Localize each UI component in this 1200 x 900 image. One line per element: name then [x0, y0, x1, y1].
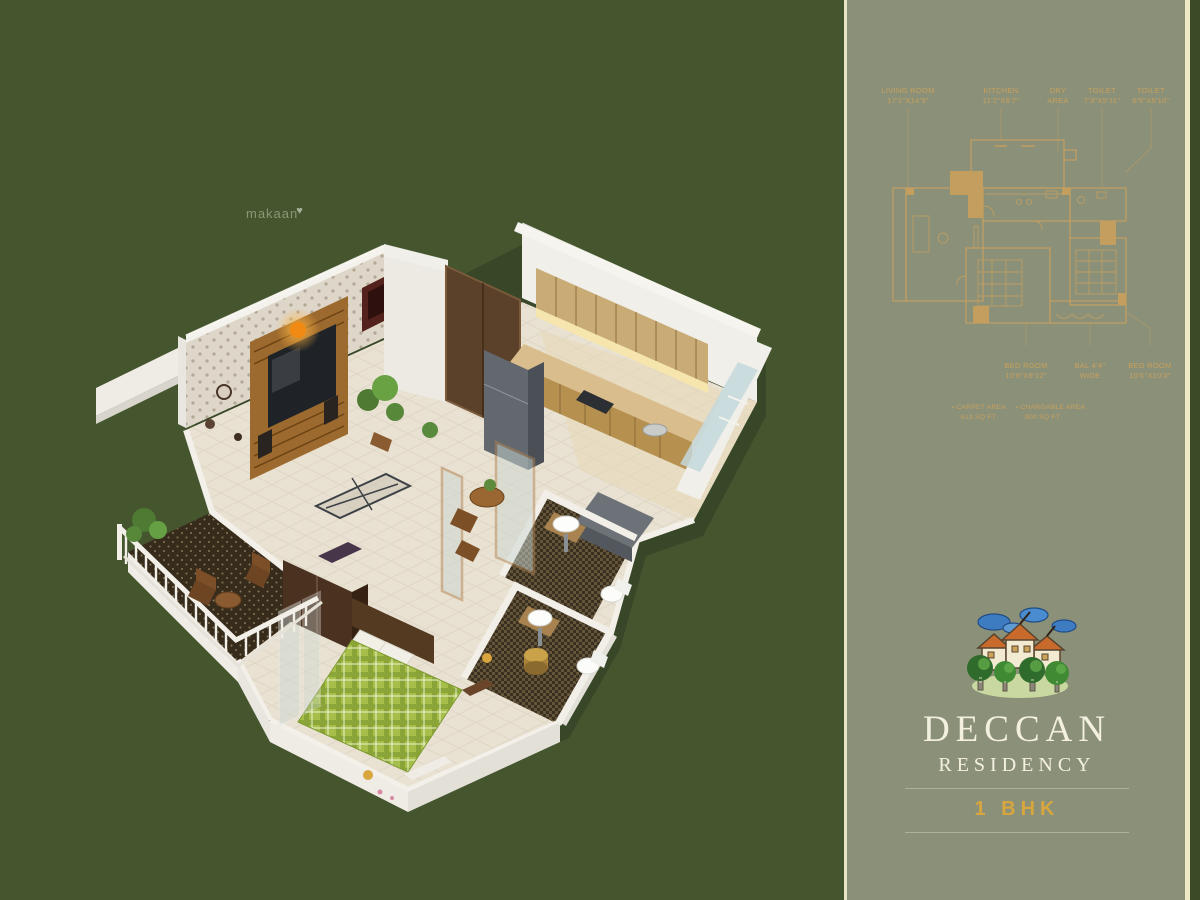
label-dims: WIDE [1068, 371, 1112, 381]
room-label-bedroom-1: BED ROOM 10'6"X9'12" [995, 361, 1057, 381]
note-line: ▪CHARGABLE AREA [1016, 404, 1085, 411]
floorplan-3d-render [0, 0, 845, 900]
plan-rooms [893, 140, 1126, 323]
brand-block: DECCAN RESIDENCY 1 BHK [877, 710, 1157, 833]
bullet-icon: ▪ [1016, 405, 1018, 411]
label-dims: 10'6"X9'12" [995, 371, 1057, 381]
panel-divider-left [844, 0, 847, 900]
note-line: ▪CARPET AREA [952, 404, 1006, 411]
brand-subtitle: RESIDENCY [877, 753, 1157, 777]
bullet-icon: ▪ [952, 405, 954, 411]
watermark-text: makaan [246, 206, 298, 221]
label-line: BED ROOM [995, 361, 1057, 371]
divider-line [905, 788, 1129, 789]
panel-edge [1190, 0, 1200, 900]
bedside-lamp [363, 770, 373, 780]
table-plant [484, 479, 496, 491]
railing-post [117, 524, 122, 560]
balcony-table [215, 592, 241, 608]
note-value: 613 SQ FT [952, 413, 1014, 422]
wash-basin [528, 610, 552, 626]
carpet-area-note: ▪CARPET AREA 613 SQ FT [952, 403, 1014, 422]
petal [390, 796, 394, 800]
poster-canvas: makaan♥ LIVING ROOM 17'2"X14'9" KITCHEN … [0, 0, 1200, 900]
balcony-plant [126, 508, 167, 542]
watermark: makaan♥ [246, 206, 306, 221]
brand-title: DECCAN [877, 710, 1157, 750]
bedside-lamp [482, 653, 492, 663]
room-label-bedroom-2: BED ROOM 10'6"X10'3" [1122, 361, 1178, 381]
label-line: BAL 4'4" [1068, 361, 1112, 371]
note-value: 900 SQ FT [1016, 413, 1088, 422]
label-dims: 10'6"X10'3" [1122, 371, 1178, 381]
heart-icon: ♥ [296, 205, 304, 217]
wood-stool [524, 648, 548, 675]
hall-plant [422, 422, 438, 438]
floorplan-2d-diagram [873, 88, 1180, 368]
external-wall-stub [96, 344, 186, 424]
unit-type-label: 1 BHK [877, 798, 1157, 821]
wash-basin [553, 516, 579, 532]
brand-logo-illustration [958, 604, 1088, 704]
room-label-balcony: BAL 4'4" WIDE [1068, 361, 1112, 381]
chargable-area-note: ▪CHARGABLE AREA 900 SQ FT [1016, 403, 1088, 422]
label-line: BED ROOM [1122, 361, 1178, 371]
sink [643, 424, 667, 436]
divider-line [905, 832, 1129, 833]
petal [378, 790, 383, 795]
